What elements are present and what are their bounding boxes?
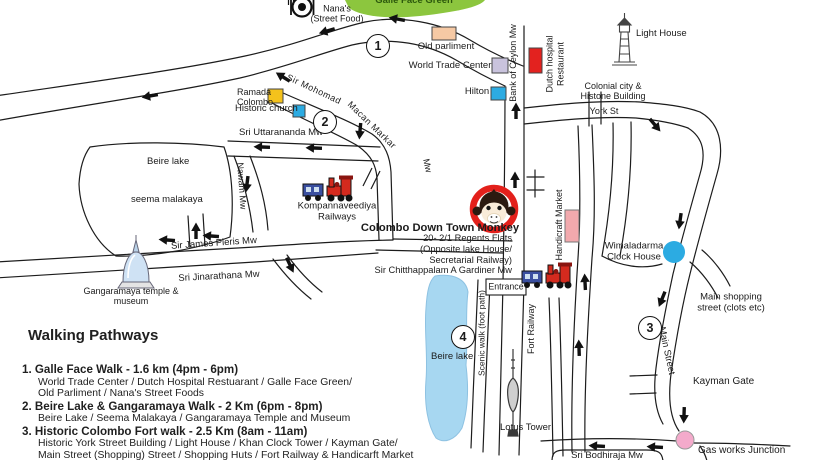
- pathway-header: 2. Beire Lake & Gangaramaya Walk - 2 Km …: [20, 401, 456, 414]
- label-dutch-hospital: Dutch hospitalRestaurant: [545, 35, 566, 92]
- colombo-walking-map: Galle Face Green Nana's(Street Food) Old…: [0, 0, 840, 460]
- pathway-detail: World Trade Center / Dutch Hospital Rest…: [20, 377, 456, 388]
- label-sri-uttarananda-mw: Sri Uttarananda Mw: [239, 128, 323, 138]
- label-nawam-mw: Nawam Mw: [235, 162, 248, 210]
- route-badge-1: 1: [366, 34, 390, 58]
- label-york-st: York St: [590, 107, 619, 117]
- gas-works-junction-marker: [676, 431, 694, 449]
- label-gas-works-junction: Gas works Junction: [698, 446, 785, 457]
- pathway-header: 3. Historic Colombo Fort walk - 2.5 Km (…: [20, 426, 456, 439]
- handicraft-market-marker: [565, 210, 579, 242]
- pathway-detail: Main Street (Shopping) Street / Shopping…: [20, 450, 456, 460]
- fort-railway-train-icon: [522, 263, 572, 289]
- label-world-trade-center: World Trade Center: [409, 61, 492, 71]
- label-macan-markar-3: Mw: [420, 158, 432, 174]
- label-galle-face-green: Galle Face Green: [375, 0, 453, 6]
- label-seema-malakaya: seema malakaya: [131, 195, 203, 205]
- dutch-hospital-marker: [529, 48, 542, 73]
- brand-address-new-1: Secretarial Railway): [330, 255, 512, 266]
- brand-address-old-2: (Opposite lake House/: [330, 244, 512, 255]
- label-wimaladarma-clock-house: WimaladarmaClock House: [605, 242, 664, 263]
- route-badge-2: 2: [313, 110, 337, 134]
- label-old-parliament: Old parliment: [418, 42, 475, 52]
- walking-pathways-title: Walking Pathways: [28, 327, 456, 344]
- brand-address-new-2: Sir Chitthappalam A Gardiner Mw: [330, 265, 512, 276]
- clock-house-marker: [663, 241, 685, 263]
- old-parliament-marker: [432, 27, 456, 40]
- label-sri-bodhiraja-mw: Sri Bodhiraja Mw: [571, 451, 643, 460]
- label-historic-church: Historic church: [235, 104, 298, 114]
- kompannaveediya-train-icon: [303, 176, 353, 202]
- label-kayman-gate: Kayman Gate: [693, 377, 754, 388]
- label-light-house: Light House: [636, 29, 687, 39]
- label-gangaramaya-temple: Gangaramaya temple &museum: [83, 287, 178, 307]
- label-scenic-walk: Scenic walk (foot path): [477, 290, 486, 376]
- pathway-detail: Old Parliment / Nana's Street Foods: [20, 388, 456, 399]
- label-nanas-street-food: Nana's(Street Food): [310, 4, 363, 23]
- label-entrance: Entrance: [488, 282, 523, 292]
- walking-pathway-item: 2. Beire Lake & Gangaramaya Walk - 2 Km …: [20, 401, 456, 425]
- label-kompannaveediya-railways: KompannaveediyaRailways: [298, 202, 377, 223]
- label-handicraft-market: Handicraft Market: [555, 189, 565, 260]
- label-main-shopping-street: Main shoppingstreet (clots etc): [697, 293, 765, 314]
- gangaramaya-temple-icon: [118, 235, 154, 288]
- brand-address: 20- 2/1 Regents Flats (Opposite lake Hou…: [330, 233, 512, 276]
- pathway-header: 1. Galle Face Walk - 1.6 km (4pm - 6pm): [20, 364, 456, 377]
- label-beire-lake-west: Beire lake: [147, 157, 189, 167]
- walking-pathway-item: 1. Galle Face Walk - 1.6 km (4pm - 6pm) …: [20, 364, 456, 399]
- label-colonial-city: Colonial city &Histone Building: [580, 81, 645, 101]
- lighthouse-icon: [612, 13, 637, 65]
- hilton-marker: [491, 87, 506, 100]
- label-hilton: Hilton: [465, 87, 489, 97]
- label-bank-of-ceylon-mw: Bank of Ceylon Mw: [509, 24, 519, 102]
- walking-pathways-legend: Walking Pathways 1. Galle Face Walk - 1.…: [20, 327, 456, 460]
- pathway-detail: Beire Lake / Seema Malakaya / Gangaramay…: [20, 413, 456, 424]
- brand-address-old-1: 20- 2/1 Regents Flats: [330, 233, 512, 244]
- label-fort-railway: Fort Railway: [527, 304, 537, 354]
- world-trade-center-marker: [492, 58, 508, 73]
- walking-pathway-item: 3. Historic Colombo Fort walk - 2.5 Km (…: [20, 426, 456, 460]
- pathway-detail: Historic York Street Building / Light Ho…: [20, 438, 456, 449]
- route-badge-3: 3: [638, 316, 662, 340]
- label-lotus-tower: Lotus Tower: [500, 423, 551, 433]
